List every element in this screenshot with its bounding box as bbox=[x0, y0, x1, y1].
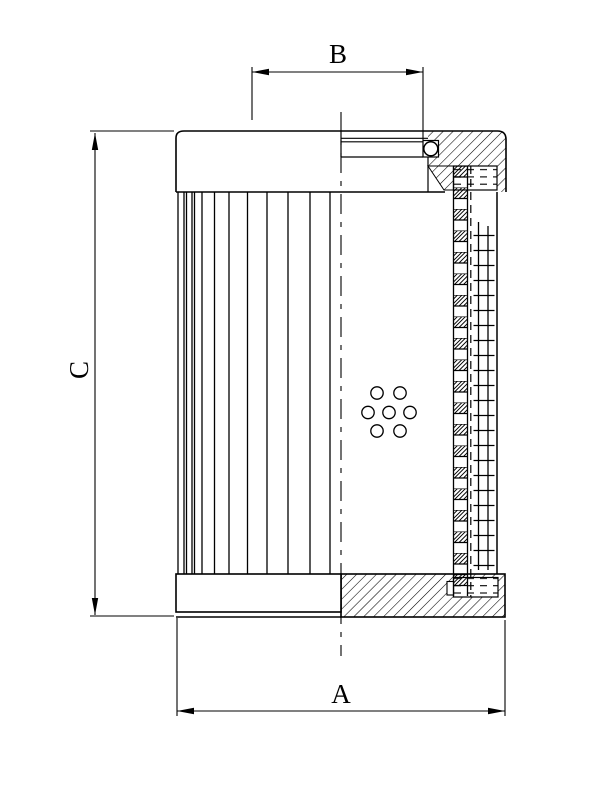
wire-mesh bbox=[474, 222, 495, 570]
dim-c-label: C bbox=[64, 361, 94, 379]
page-background bbox=[0, 0, 612, 792]
dim-b-label: B bbox=[329, 39, 347, 69]
bottom-gasket-notch bbox=[447, 582, 454, 596]
dim-a-label: A bbox=[331, 679, 351, 709]
drawing-page: B C A bbox=[0, 0, 612, 792]
top-cap-rim-hatch bbox=[497, 166, 506, 192]
o-ring bbox=[424, 142, 438, 156]
core-tube bbox=[454, 166, 468, 596]
bottom-cap-left bbox=[176, 574, 341, 612]
drawing-canvas: B C A bbox=[0, 0, 612, 792]
top-cap-hatch bbox=[428, 131, 506, 166]
